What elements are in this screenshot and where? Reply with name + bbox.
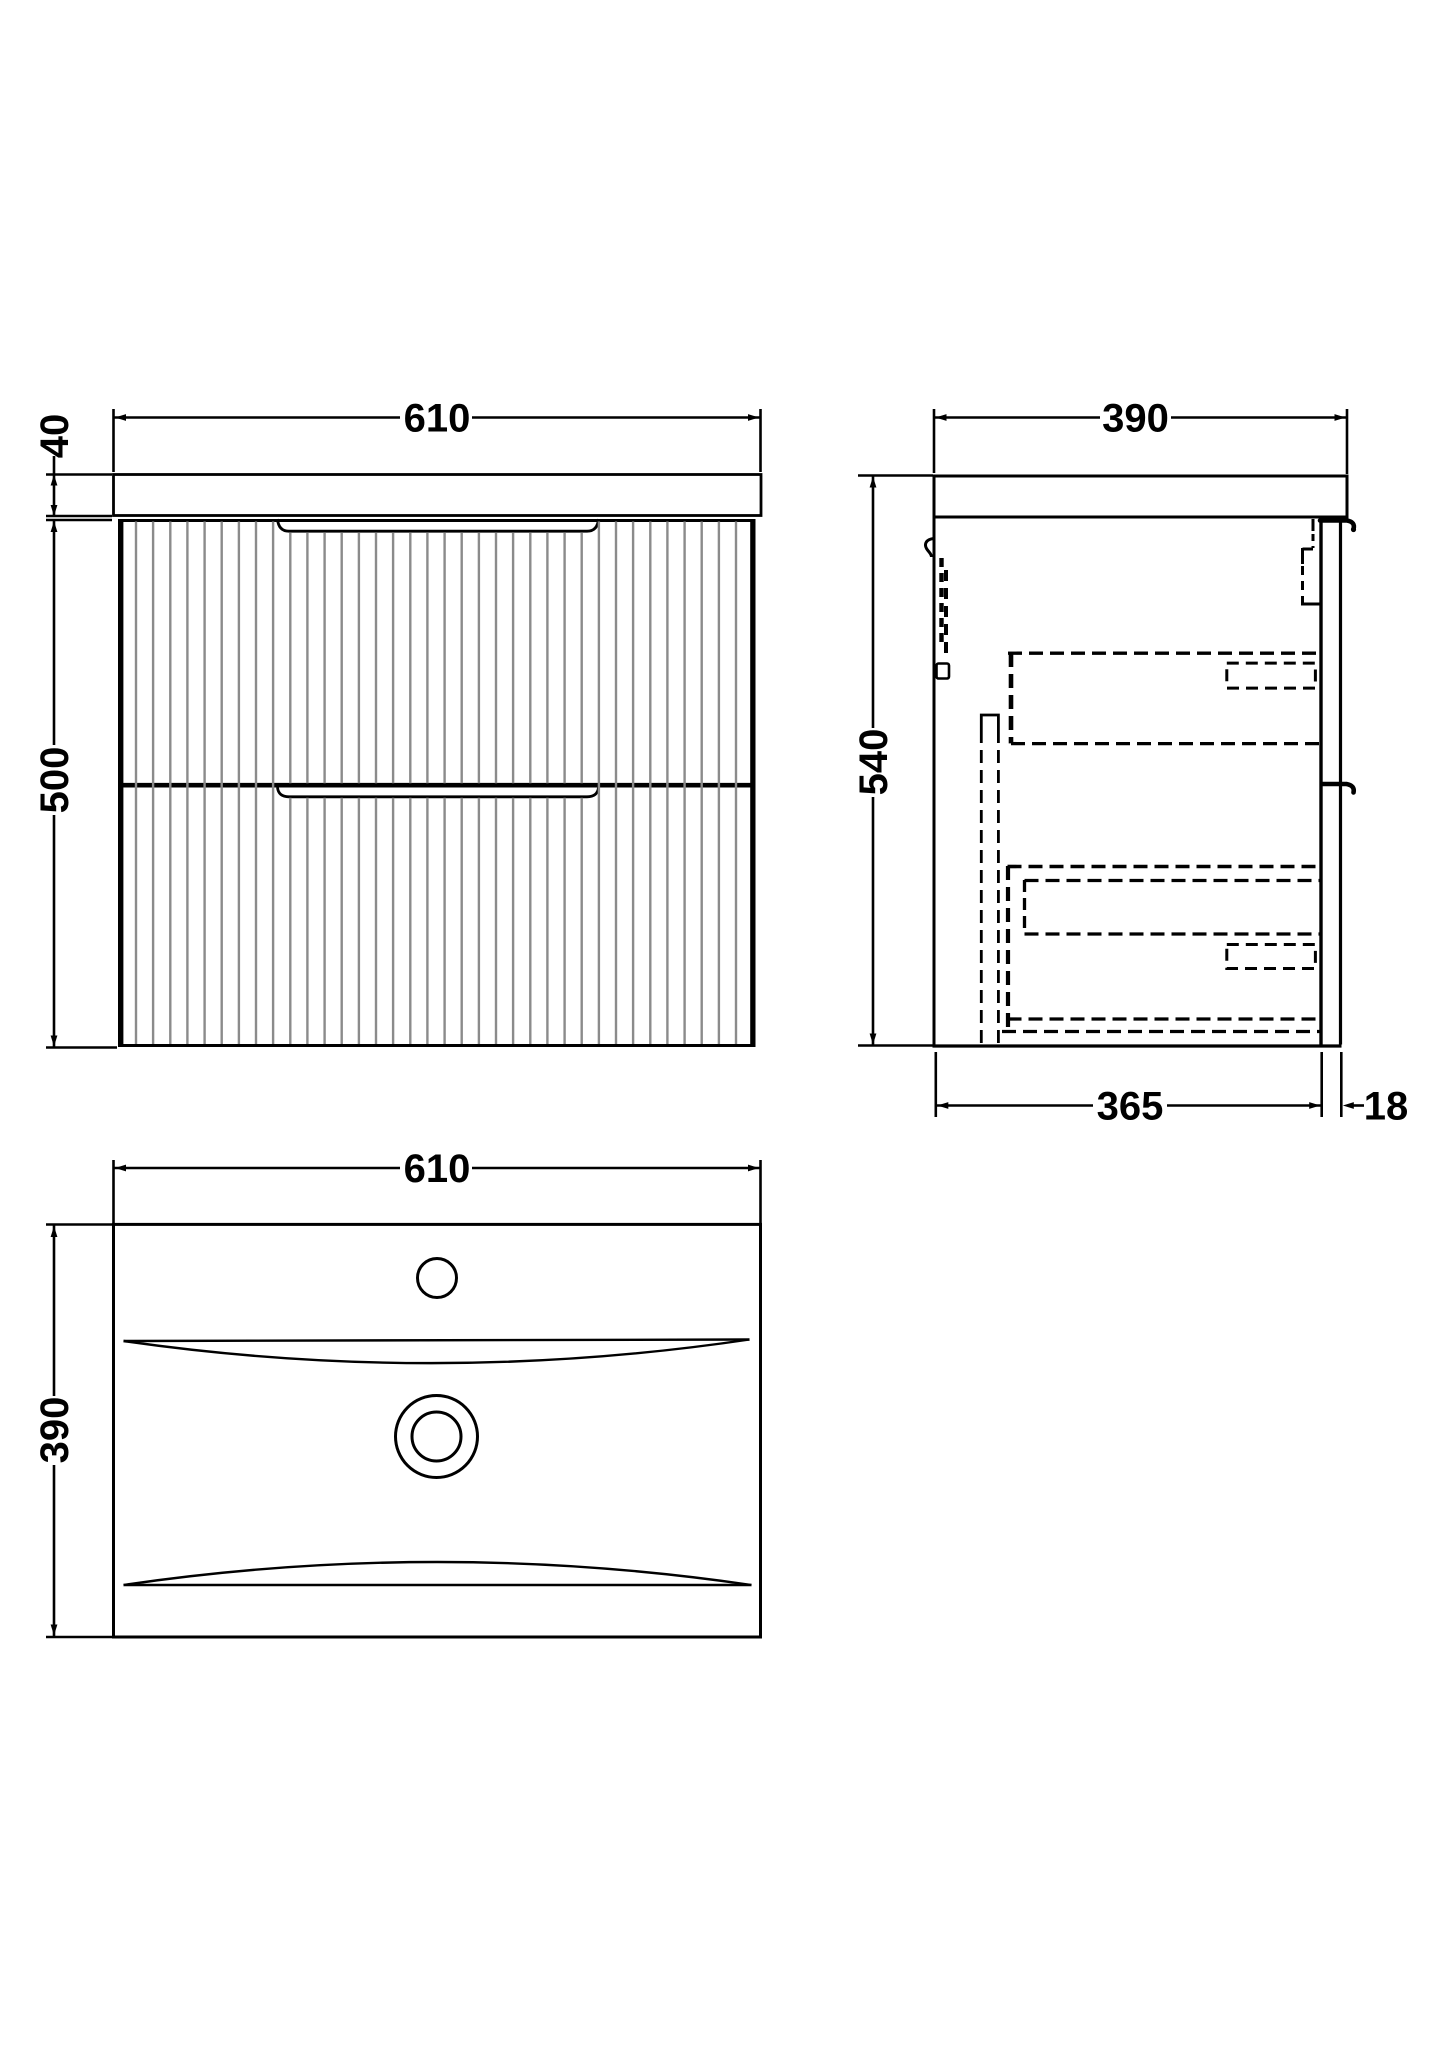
svg-text:540: 540 [852,729,896,796]
svg-text:500: 500 [33,747,77,814]
svg-text:365: 365 [1097,1085,1164,1129]
svg-text:390: 390 [33,1397,77,1464]
svg-text:18: 18 [1364,1085,1409,1129]
svg-text:40: 40 [33,414,77,459]
svg-text:610: 610 [404,1147,471,1191]
svg-text:610: 610 [404,397,471,441]
svg-text:390: 390 [1102,397,1169,441]
